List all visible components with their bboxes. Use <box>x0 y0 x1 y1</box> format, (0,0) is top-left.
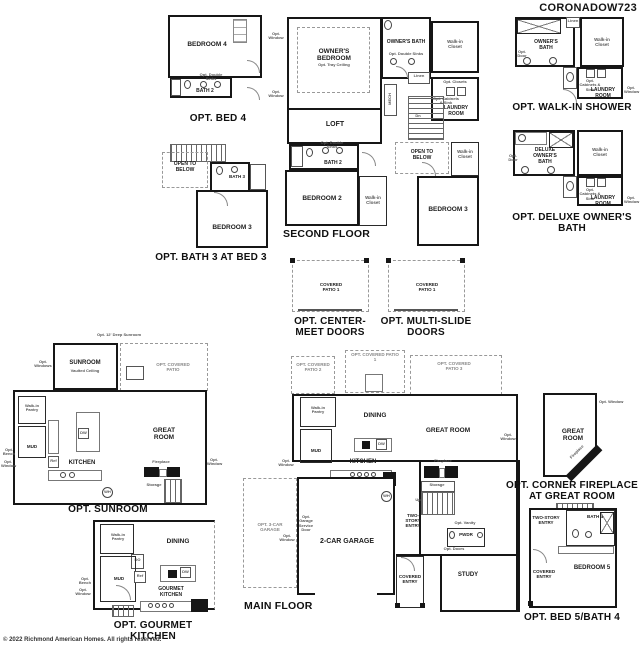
toilet-icon <box>216 166 223 175</box>
toilet-icon <box>306 148 313 157</box>
wall-post <box>364 258 369 263</box>
sink-icon <box>408 58 415 65</box>
chimney <box>126 366 144 380</box>
mech-label: MECH <box>388 86 392 112</box>
sink-icon <box>69 472 75 478</box>
linen-label: Linen <box>407 74 431 78</box>
covered-entry-label: COVERED ENTRY <box>531 569 557 579</box>
great-room-label: GREAT ROOM <box>142 427 186 442</box>
caption-opt-sunroom: OPT. SUNROOM <box>68 504 148 515</box>
shower-icon <box>600 512 614 534</box>
wall-post <box>290 258 295 263</box>
washer-icon <box>586 69 595 78</box>
mud-label: MUD <box>111 576 127 581</box>
room-label-bath2: BATH 2 <box>192 89 218 95</box>
wic-label: Walk-in Closet <box>586 148 614 158</box>
room-label-bedroom3: BEDROOM 3 <box>424 206 472 213</box>
wh-label: WH <box>103 490 112 494</box>
dryer-icon <box>597 69 606 78</box>
washer-icon <box>586 178 595 187</box>
toilet-icon <box>184 80 191 89</box>
caption-opt-center-meet: OPT. CENTER-MEET DOORS <box>283 316 377 338</box>
opt-double-sinks-label: Opt. Double Sinks <box>196 73 226 82</box>
fireplace-box <box>159 469 167 477</box>
dw-label: DW <box>180 570 191 574</box>
opt-vanity-label: Opt. Vanity <box>452 521 478 525</box>
room-label-laundry: LAUNDRY ROOM <box>437 106 475 118</box>
vaulted-ceiling-label: Vaulted Ceiling <box>58 369 112 373</box>
tray-ceiling-label: Opt. Tray Ceiling <box>306 63 362 67</box>
range-icon <box>155 603 160 608</box>
dw-label: DW <box>376 442 387 446</box>
wall-mud <box>18 426 46 458</box>
room-label-bath2: BATH 2 <box>318 161 348 167</box>
pwdr-label: PWDR <box>456 532 476 537</box>
wic3-label: Walk-in Closet <box>453 150 477 160</box>
opt-bench-label: Opt. Bench <box>2 448 16 457</box>
opt-window-label: Opt. Window <box>624 196 638 205</box>
stairs <box>421 492 455 515</box>
kitchen-label: KITCHEN <box>64 460 100 467</box>
door-track <box>298 309 362 311</box>
caption-second-floor: SECOND FLOOR <box>283 229 379 241</box>
closet <box>558 546 614 554</box>
fireplace-block <box>167 467 180 477</box>
patio3-label: OPT. COVERED PATIO 3 <box>432 362 476 372</box>
sink-icon <box>585 531 592 538</box>
shower-icon <box>517 19 561 34</box>
range-icon <box>162 603 167 608</box>
porch-post <box>528 601 533 606</box>
dining-label: DINING <box>156 538 200 545</box>
room-label-laundry: LAUNDRY ROOM <box>588 196 618 208</box>
patio1-label: OPT. COVERED PATIO 1 <box>350 353 400 363</box>
gourmet-kitchen-label: GOURMET KITCHEN <box>149 587 193 599</box>
up-label: Up <box>413 498 423 502</box>
stairs-dn-label: Dn <box>412 114 424 118</box>
cabinet <box>171 79 181 96</box>
wall-study <box>440 554 518 612</box>
bath2-sinks-label: Opt. Double Sinks <box>316 141 348 150</box>
room-label-bedroom2: BEDROOM 2 <box>294 195 350 202</box>
opt-patio-label: OPT. COVERED PATIO <box>152 363 194 373</box>
caption-opt-deluxe-bath: OPT. DELUXE OWNER'S BATH <box>504 212 640 234</box>
caption-opt-bed5: OPT. BED 5/BATH 4 <box>516 612 628 623</box>
opt-3car-label: OPT. 3-CAR GARAGE <box>250 523 290 533</box>
covered-entry-label: COVERED ENTRY <box>398 574 422 584</box>
pantry-label: Walk-in Pantry <box>306 406 330 415</box>
opt-doors-label: Opt. Doors <box>443 547 465 551</box>
fireplace-block <box>445 466 458 478</box>
opt-door-label: Opt. Door <box>505 154 521 163</box>
room-label-sunroom: SUNROOM <box>60 360 110 367</box>
door-arc <box>563 89 577 103</box>
sink-icon <box>390 58 397 65</box>
door-arc <box>362 152 376 166</box>
opt-window-label: Opt. Window <box>624 86 638 95</box>
island-sink <box>362 441 370 449</box>
toilet-icon <box>566 181 574 191</box>
dryer-icon <box>457 87 466 96</box>
great-room-label: GREAT ROOM <box>551 428 595 443</box>
kitchen-corner-block <box>191 599 208 612</box>
porch-post <box>395 603 400 608</box>
sink-icon <box>200 81 207 88</box>
island-sink <box>168 570 177 578</box>
garage-door-opening <box>315 592 377 596</box>
dryer-icon <box>597 178 606 187</box>
opt-window-label: Opt. Window <box>279 534 295 543</box>
patio2-label: OPT. COVERED PATIO 2 <box>293 363 333 373</box>
sink-icon <box>549 57 557 65</box>
wic-label: Walk-in Closet <box>588 38 616 48</box>
study-label: STUDY <box>448 572 488 579</box>
caption-opt-corner-fireplace: OPT. CORNER FIREPLACE AT GREAT ROOM <box>505 480 639 502</box>
range-icon <box>169 603 174 608</box>
opt-window-label: Opt. Window <box>278 459 294 468</box>
opt-double-sinks-label: Opt. Double Sinks <box>384 52 428 56</box>
washer-icon <box>446 87 455 96</box>
pantry-label: Walk-in Pantry <box>21 404 43 413</box>
dining-label: DINING <box>352 412 398 419</box>
room-label-bedroom4: BEDROOM 4 <box>183 41 231 48</box>
open-to-below-label: OPEN TO BELOW <box>166 162 204 174</box>
door-track <box>394 309 458 311</box>
copyright-text: © 2022 Richmond American Homes. All righ… <box>3 637 161 643</box>
opt-bench-label: Opt. Bench <box>77 577 93 586</box>
deep-sunroom-label: Opt. 12' Deep Sunroom <box>86 333 152 337</box>
door-arc <box>247 87 260 100</box>
wall-mud <box>300 429 332 463</box>
caption-opt-bath3: OPT. BATH 3 AT BED 3 <box>152 252 270 263</box>
counter <box>48 420 59 454</box>
wic2-label: Walk-in Closet <box>361 196 385 206</box>
toilet-icon <box>572 529 579 538</box>
patio-label: COVERED PATIO 1 <box>315 282 347 292</box>
room-label-bedroom3: BEDROOM 3 <box>208 224 256 231</box>
room-label-owners-bedroom: OWNER'S BEDROOM <box>302 48 366 63</box>
sink-icon <box>521 166 529 174</box>
caption-opt-bed4: OPT. BED 4 <box>168 113 268 124</box>
fireplace-label: Fireplace <box>428 459 458 463</box>
toilet-icon <box>384 20 392 30</box>
fireplace-block <box>144 467 159 477</box>
wall-bedroom3 <box>196 190 268 248</box>
open-to-below-label: OPEN TO BELOW <box>401 150 443 162</box>
storage-label: Storage <box>423 483 451 487</box>
caption-opt-walkin-shower: OPT. WALK-IN SHOWER <box>506 102 638 113</box>
dw-label: DW <box>78 431 89 435</box>
service-door-label: Opt. Garage Service Door <box>296 515 316 533</box>
tub-icon <box>291 146 303 167</box>
range-icon <box>148 603 153 608</box>
toilet-icon <box>566 72 574 82</box>
opt-windows-label: Opt. Windows <box>33 360 53 369</box>
great-room-label: GREAT ROOM <box>424 427 472 434</box>
room-label-laundry: LAUNDRY ROOM <box>588 88 618 100</box>
bedroom5-label: BEDROOM 5 <box>568 565 616 572</box>
fireplace-block <box>424 466 439 478</box>
opt-window-label: Opt. Window <box>500 433 516 442</box>
sink-icon <box>523 57 531 65</box>
room-label-bath3: BATH 3 <box>226 174 248 179</box>
patio-door <box>365 374 383 392</box>
sink-icon <box>60 472 66 478</box>
room-label-owners-bath: OWNER'S BATH <box>528 40 564 52</box>
pantry-label: Walk-in Pantry <box>106 533 130 542</box>
opt-window-label: Opt. Window <box>268 32 284 41</box>
sink-icon <box>231 166 238 173</box>
closet <box>250 164 266 190</box>
shower-icon <box>549 132 573 148</box>
wall-post <box>386 258 391 263</box>
opt-window-label: Opt. Window <box>599 400 629 404</box>
caption-opt-multi-slide: OPT. MULTI-SLIDE DOORS <box>379 316 473 338</box>
entry-label: TWO-STORY ENTRY <box>532 515 560 525</box>
opt-window-label: Opt. Window <box>1 460 15 469</box>
toilet-icon <box>449 531 455 539</box>
tub-drain <box>518 134 526 142</box>
ref-label: Ref <box>48 459 59 463</box>
opt-window-label: Opt. Window <box>75 588 91 597</box>
room-label-owners-bath: OWNER'S BATH <box>386 40 426 46</box>
sink-icon <box>477 532 483 538</box>
floorplan-sheet: { "colors": {"paper": "#ffffff", "ink": … <box>0 0 640 646</box>
counter <box>48 470 102 481</box>
opt-closets-label: Opt. Closets <box>435 80 475 84</box>
stairs <box>112 605 134 617</box>
stairs <box>164 479 182 503</box>
sink-icon <box>547 166 555 174</box>
opt-window-label: Opt. Window <box>207 458 221 467</box>
mud-label: MUD <box>305 448 327 453</box>
patio-label: COVERED PATIO 1 <box>411 282 443 292</box>
wall-post <box>460 258 465 263</box>
kitchen-label: KITCHEN <box>344 459 382 466</box>
fireplace-label: Fireplace <box>146 460 176 464</box>
garage-label: 2-CAR GARAGE <box>318 538 376 546</box>
mud-label: MUD <box>26 444 38 449</box>
fireplace-box <box>439 468 445 478</box>
model-number: CORONADOW723 <box>539 2 637 14</box>
room-label-deluxe-bath: DELUXE OWNER'S BATH <box>526 148 564 165</box>
porch-post <box>420 603 425 608</box>
wh-label: WH <box>382 494 391 498</box>
wic-label: Walk-in Closet <box>441 40 469 50</box>
entry-label: TWO-STORY ENTRY <box>400 513 426 529</box>
closet-shelves <box>233 19 247 43</box>
room-label-loft: LOFT <box>312 121 358 129</box>
sink-icon <box>214 81 221 88</box>
opt-window-label: Opt. Window <box>268 90 284 99</box>
ref-label: Ref <box>134 574 146 578</box>
caption-main-floor: MAIN FLOOR <box>244 601 328 613</box>
